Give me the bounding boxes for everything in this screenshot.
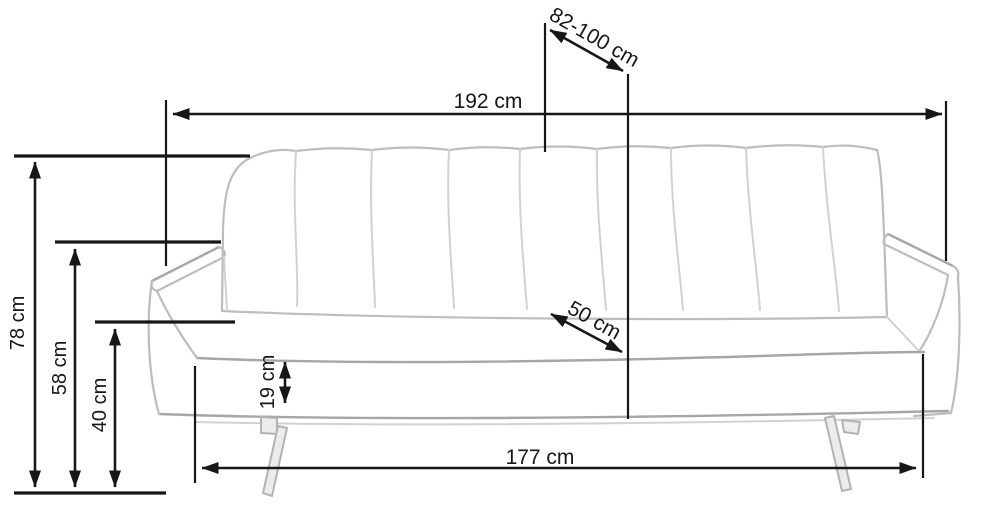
sofa-right-armrest: [884, 234, 960, 416]
dim-overall-width: 192 cm: [166, 90, 946, 266]
dim-seat-height: 40 cm: [89, 322, 235, 487]
sofa-dimension-drawing: 192 cm 82-100 cm 50 cm 78 cm 58 cm: [0, 0, 995, 511]
label-depth-range: 82-100 cm: [545, 3, 643, 72]
dim-depth-range: 82-100 cm: [545, 3, 643, 419]
label-armrest-height: 58 cm: [49, 341, 71, 395]
sofa-sketch: [149, 145, 960, 496]
front-left-leg: [263, 426, 287, 496]
label-seat-edge-height: 19 cm: [257, 355, 279, 409]
label-overall-height: 78 cm: [7, 296, 29, 350]
label-overall-width: 192 cm: [454, 90, 523, 113]
right-leg-mount: [842, 420, 860, 434]
sofa-backrest: [222, 145, 887, 317]
label-seat-height: 40 cm: [89, 378, 111, 432]
left-leg-mount: [261, 417, 277, 434]
sofa-left-armrest: [149, 247, 227, 414]
diagram-canvas: 192 cm 82-100 cm 50 cm 78 cm 58 cm: [0, 0, 995, 511]
label-base-width: 177 cm: [506, 446, 575, 469]
dim-seat-depth: 50 cm: [551, 297, 625, 352]
dim-seat-edge-height: 19 cm: [257, 355, 285, 409]
